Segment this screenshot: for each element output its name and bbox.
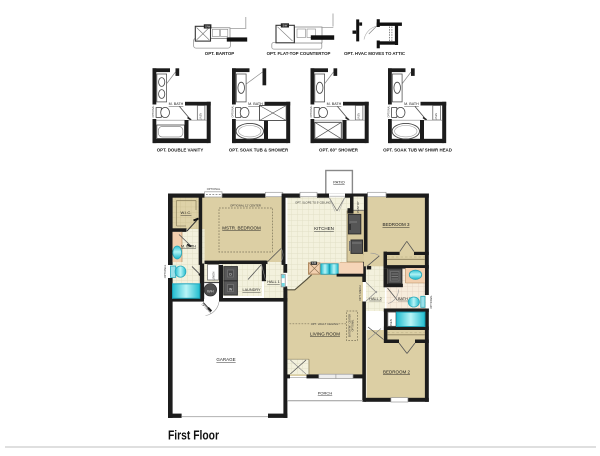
svg-text:OPT. VAULT CEILING: OPT. VAULT CEILING <box>311 322 339 326</box>
svg-text:First Floor: First Floor <box>168 428 219 443</box>
svg-text:LIVING ROOM: LIVING ROOM <box>310 332 340 337</box>
svg-text:M. BATH: M. BATH <box>404 102 419 106</box>
svg-text:OPTIONAL: OPTIONAL <box>388 105 391 118</box>
svg-text:BEDROOM 2: BEDROOM 2 <box>383 369 411 374</box>
svg-text:OPT. HVAC MOVES TO ATTIC: OPT. HVAC MOVES TO ATTIC <box>344 51 406 56</box>
svg-text:OPT. MECH: OPT. MECH <box>358 285 362 300</box>
svg-text:S/W: S/W <box>282 24 287 28</box>
svg-text:PANTRY: PANTRY <box>356 201 360 213</box>
svg-text:LINEN: LINEN <box>389 319 393 328</box>
svg-text:OPTIONAL: OPTIONAL <box>163 264 167 278</box>
svg-text:M. BATH: M. BATH <box>169 102 184 106</box>
svg-text:OPT. 60" SHOWER: OPT. 60" SHOWER <box>319 148 359 153</box>
svg-text:OPT. BARTOP: OPT. BARTOP <box>205 51 235 56</box>
svg-text:OPTIONAL: OPTIONAL <box>207 187 221 191</box>
svg-text:MSTR. BEDROOM: MSTR. BEDROOM <box>222 226 261 231</box>
svg-text:LINEN: LINEN <box>211 272 215 281</box>
svg-text:PATIO: PATIO <box>333 180 344 185</box>
svg-text:LAUNDRY: LAUNDRY <box>242 288 261 292</box>
svg-text:OPTIONAL: OPTIONAL <box>232 105 235 118</box>
svg-text:OPT. FLAT-TOP COUNTERTOP: OPT. FLAT-TOP COUNTERTOP <box>267 51 331 56</box>
svg-text:LINEN: LINEN <box>200 113 203 120</box>
svg-text:BEDROOM 3: BEDROOM 3 <box>382 222 410 227</box>
svg-text:GARAGE: GARAGE <box>216 357 235 362</box>
svg-text:OPTIONAL: OPTIONAL <box>310 105 313 118</box>
svg-text:LINEN: LINEN <box>435 113 438 120</box>
svg-text:OPTIONAL 12' CENTER: OPTIONAL 12' CENTER <box>230 204 261 208</box>
svg-text:OPT. SOAK TUB W/ SHWR HEAD: OPT. SOAK TUB W/ SHWR HEAD <box>383 148 452 153</box>
svg-text:OPTIONAL: OPTIONAL <box>152 105 155 118</box>
svg-text:W.I.C.: W.I.C. <box>181 210 192 215</box>
svg-text:HALL 2: HALL 2 <box>369 297 382 301</box>
svg-text:PORCH: PORCH <box>318 390 333 395</box>
svg-text:OPT. SOAK TUB & SHOWER: OPT. SOAK TUB & SHOWER <box>229 148 289 153</box>
svg-text:LINEN: LINEN <box>358 113 361 120</box>
svg-text:ENTERTMT. CENTER: ENTERTMT. CENTER <box>350 314 352 337</box>
svg-text:S/W: S/W <box>312 262 317 265</box>
svg-text:HALL 1: HALL 1 <box>267 280 280 284</box>
svg-text:OPTIONAL: OPTIONAL <box>429 295 433 309</box>
svg-text:OPT. SLOPE TO 9' CEILING: OPT. SLOPE TO 9' CEILING <box>295 201 331 205</box>
svg-text:OPT. DOUBLE VANITY: OPT. DOUBLE VANITY <box>157 148 204 153</box>
svg-text:OPTIONAL: OPTIONAL <box>352 319 355 331</box>
svg-text:M. BATH: M. BATH <box>327 102 342 106</box>
svg-text:S/W: S/W <box>205 25 210 29</box>
svg-text:KITCHEN: KITCHEN <box>314 226 334 231</box>
svg-text:WH: WH <box>207 288 214 293</box>
